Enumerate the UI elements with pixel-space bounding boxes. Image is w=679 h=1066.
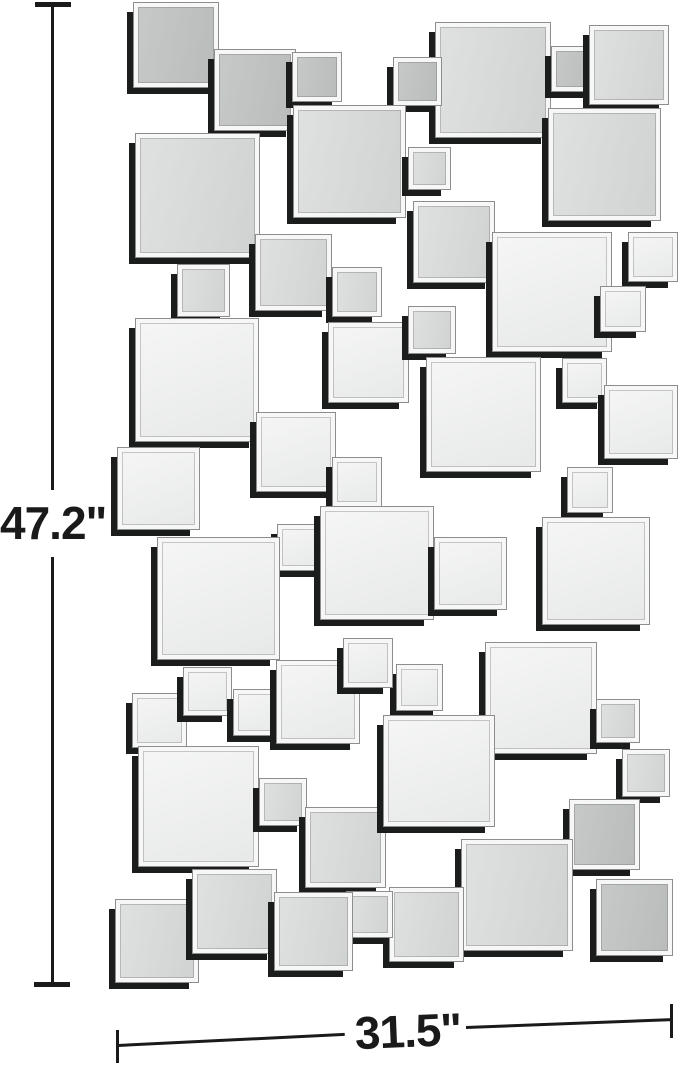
height-dimension-label: 47.2": [0, 496, 106, 550]
mirror-tile: [604, 385, 678, 459]
mirror-tile: [259, 778, 307, 826]
mirror-tile: [562, 358, 607, 403]
mirror-tile: [600, 286, 646, 332]
mirror-tile: [214, 49, 296, 131]
mirror-tile: [461, 839, 573, 951]
mirror-tile: [393, 57, 442, 106]
mirror-tile: [117, 447, 200, 530]
mirror-tile: [343, 638, 393, 688]
mirror-tile: [133, 2, 219, 88]
mirror-tile: [434, 537, 507, 610]
mirror-tile: [132, 693, 187, 748]
mirror-tile: [157, 537, 280, 660]
mirror-tile: [396, 664, 443, 711]
mirror-tile: [320, 506, 434, 620]
product-image: 47.2" 31.5": [0, 0, 679, 1066]
mirror-tile: [435, 22, 551, 138]
mirror-tile: [589, 25, 669, 105]
mirror-tile: [305, 807, 386, 888]
mirror-tile: [596, 879, 673, 956]
width-dimension-label: 31.5": [345, 1002, 471, 1061]
mirror-tile: [256, 412, 336, 492]
mirror-tile: [569, 799, 640, 870]
mirror-tile: [389, 887, 464, 962]
mirror-tile: [413, 201, 495, 283]
mirror-tile: [274, 892, 353, 971]
height-dimension-line-lower: [51, 557, 54, 986]
mirror-tile: [292, 52, 342, 102]
mirror-tile: [492, 232, 612, 352]
mirror-tile: [138, 746, 259, 867]
mirror-tile: [183, 667, 232, 716]
mirror-tile: [192, 869, 277, 954]
mirror-tile: [177, 264, 230, 317]
mirror-tile: [408, 306, 456, 354]
mirror-tile: [426, 357, 541, 472]
mirror-tile: [328, 322, 409, 403]
height-dimension-line-upper: [51, 3, 54, 490]
mirror-tile: [567, 467, 613, 513]
mirror-tile: [485, 642, 597, 754]
mirror-tile: [596, 699, 640, 743]
mirror-tile: [408, 147, 451, 190]
mirror-tile: [548, 108, 661, 221]
mirror-tile: [628, 232, 678, 282]
mirror-tile: [135, 318, 259, 442]
height-dimension-tick-top: [35, 2, 71, 7]
mirror-tile: [332, 267, 382, 317]
mirror-tile: [293, 105, 406, 218]
mirror-tile: [346, 891, 393, 938]
mirror-tile: [135, 133, 260, 258]
mirror-tile: [277, 524, 324, 571]
mirror-tile: [332, 457, 382, 507]
mirror-tile: [383, 715, 495, 827]
height-dimension-tick-bottom: [34, 982, 70, 987]
mirror-tile: [233, 689, 280, 736]
mirror-tile: [622, 749, 670, 797]
width-dimension-tick-left: [116, 1030, 119, 1063]
mirror-tile: [115, 899, 199, 983]
mirror-tile: [542, 517, 650, 625]
width-dimension-tick-right: [670, 1004, 673, 1038]
mirror-tile: [255, 234, 332, 311]
